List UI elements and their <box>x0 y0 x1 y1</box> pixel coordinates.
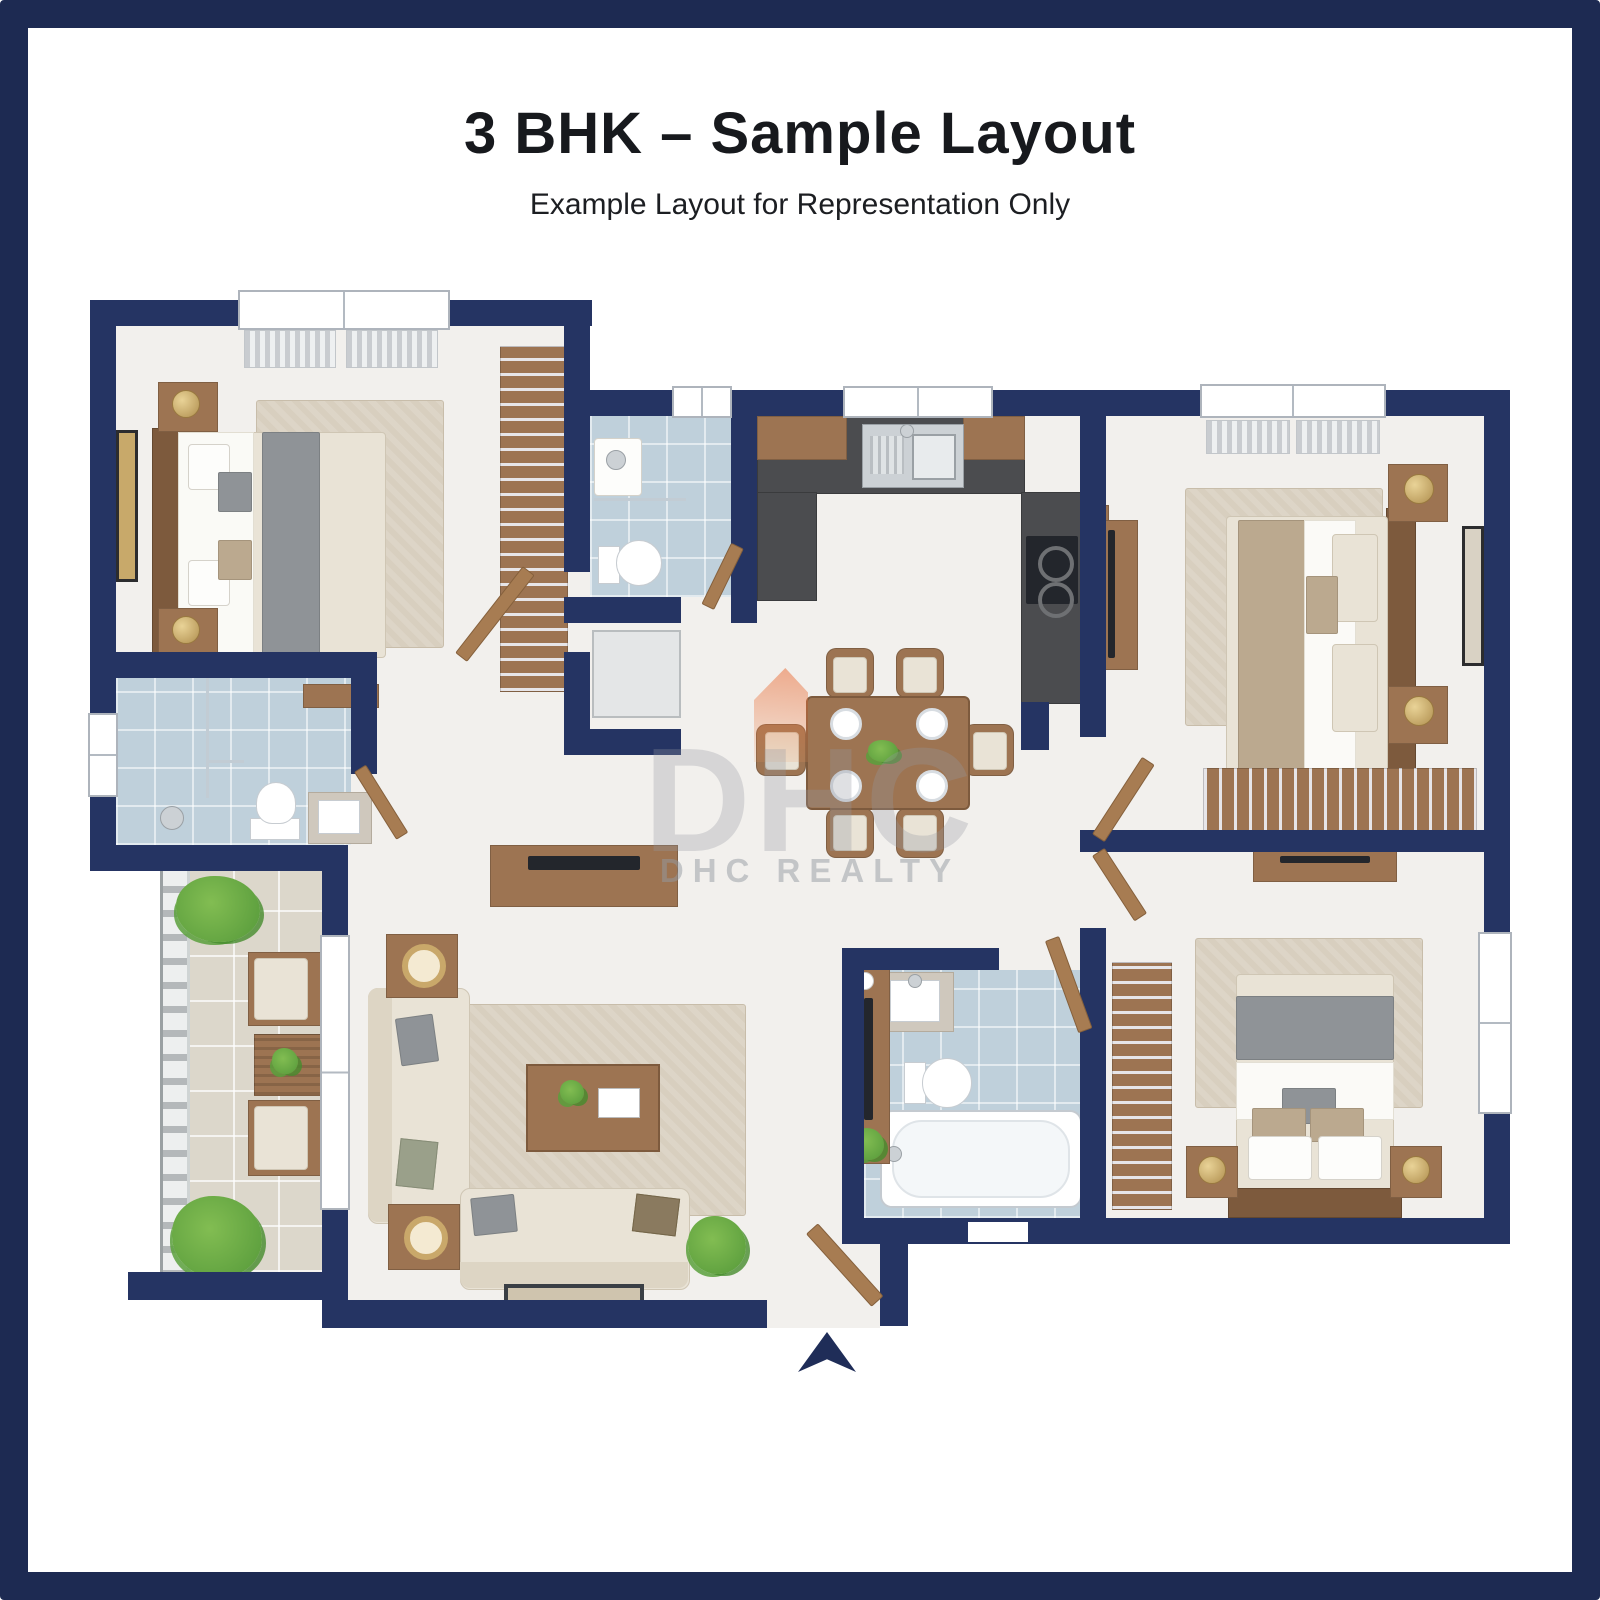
wall <box>842 948 999 970</box>
ensuite-shower-head <box>160 806 184 830</box>
curtain-bedroom1 <box>244 330 336 368</box>
wall <box>322 845 348 937</box>
bed2-accent-pillow <box>1306 576 1338 634</box>
bedroom2-wardrobe <box>1203 768 1477 832</box>
kitchen-cabinet <box>963 416 1025 460</box>
ensuite-shower-shelf <box>206 760 244 763</box>
balcony-armchair <box>248 1100 330 1176</box>
bed3-headboard <box>1228 1188 1402 1218</box>
wall-recess <box>968 1222 1028 1242</box>
balcony-table-plant <box>272 1048 298 1074</box>
wall <box>90 652 377 678</box>
bed2-blanket <box>1238 520 1306 776</box>
bathroom1-shower-head <box>606 450 626 470</box>
balcony-plant <box>172 1196 262 1278</box>
bathtub-inner <box>892 1120 1070 1198</box>
kitchen-faucet <box>900 424 914 438</box>
floor-entry <box>765 1300 880 1328</box>
kitchen-sink-basin <box>912 434 956 480</box>
bathroom1-toilet-bowl <box>616 540 662 586</box>
chair-cushion <box>903 657 937 693</box>
curtain-bedroom2 <box>1296 420 1380 454</box>
bed2-lamp <box>1404 474 1434 504</box>
utility-fridge <box>592 630 681 718</box>
sofa-pillow <box>396 1138 439 1190</box>
bed2-headboard <box>1386 508 1416 788</box>
curtain-bedroom2 <box>1206 420 1290 454</box>
window-bedroom1 <box>238 290 450 330</box>
ensuite-sink <box>318 800 360 834</box>
wall <box>1080 830 1510 852</box>
bedroom1-artwork <box>116 430 138 582</box>
sofa-back <box>368 988 392 1222</box>
window-bedroom3 <box>1478 932 1512 1114</box>
balcony-armchair <box>248 952 330 1026</box>
wall <box>564 597 681 623</box>
chair-cushion <box>833 657 867 693</box>
wall <box>345 1300 767 1328</box>
balcony-plant <box>176 876 260 942</box>
sofa-pillow <box>632 1193 680 1236</box>
bedroom3-dresser <box>1253 850 1397 882</box>
wall <box>322 1208 348 1328</box>
ensuite-shower-glass <box>206 678 209 798</box>
living-side-tv <box>864 998 873 1120</box>
wall <box>842 1218 1510 1244</box>
bed2-pillow <box>1332 534 1378 622</box>
window-bathroom1 <box>672 386 732 418</box>
page-title: 3 BHK – Sample Layout <box>0 100 1600 167</box>
wall <box>1484 390 1510 936</box>
coffee-table-plant <box>560 1080 584 1104</box>
bed3-blanket <box>1236 996 1394 1060</box>
armchair-cushion <box>254 958 308 1020</box>
kitchen-counter-left <box>757 492 817 601</box>
bed1-accent-pillow <box>218 472 252 512</box>
wall <box>351 652 377 774</box>
sofa-pillow <box>470 1194 518 1236</box>
bed2-lamp <box>1404 696 1434 726</box>
bed3-pillow <box>1318 1136 1382 1180</box>
bed3-lamp <box>1198 1156 1226 1184</box>
window-kitchen <box>843 386 993 418</box>
ensuite-toilet-bowl <box>256 782 296 824</box>
dining-chair <box>826 648 874 698</box>
kitchen-drainboard <box>870 436 904 474</box>
wall <box>1021 702 1049 750</box>
bedroom3-wardrobe <box>1112 962 1172 1210</box>
stove-burner <box>1038 582 1074 618</box>
window-bedroom2 <box>1200 384 1386 418</box>
coffee-table-book <box>598 1088 640 1118</box>
armchair-cushion <box>254 1106 308 1170</box>
page: { "header": { "title": "3 BHK – Sample L… <box>0 0 1600 1600</box>
bedroom2-tv <box>1108 530 1115 658</box>
bathroom3-toilet-bowl <box>922 1058 972 1108</box>
window-ensuite <box>88 713 118 797</box>
side-table-decor <box>404 1216 448 1260</box>
side-table-decor <box>402 944 446 988</box>
bedroom1-wardrobe <box>500 346 568 692</box>
wall <box>880 1244 908 1326</box>
bed3-lamp <box>1402 1156 1430 1184</box>
bed1-lamp <box>172 390 200 418</box>
balcony-glass-door <box>320 935 350 1210</box>
living-plant <box>688 1216 746 1274</box>
bathroom1-shower-glass <box>594 498 686 501</box>
bed1-accent-pillow <box>218 540 252 580</box>
wall <box>1080 928 1106 1220</box>
page-subtitle: Example Layout for Representation Only <box>0 188 1600 222</box>
wall <box>842 948 864 1220</box>
sofa-pillow <box>395 1014 439 1067</box>
curtain-bedroom1 <box>346 330 438 368</box>
bed2-pillow <box>1332 644 1378 732</box>
wall <box>128 1272 348 1300</box>
bed1-lamp <box>172 616 200 644</box>
bed1-blanket <box>262 432 320 658</box>
bedroom2-artwork <box>1462 526 1484 666</box>
wall <box>731 390 757 623</box>
dining-chair <box>896 648 944 698</box>
wall <box>90 845 348 871</box>
stove-burner <box>1038 546 1074 582</box>
bedroom3-dresser-tv <box>1280 856 1370 863</box>
watermark-label: DHC REALTY <box>620 852 1000 890</box>
bathroom3-faucet <box>908 974 922 988</box>
wall <box>1080 390 1106 737</box>
wall <box>564 300 590 572</box>
bed3-pillow <box>1248 1136 1312 1180</box>
kitchen-cabinet <box>757 416 847 460</box>
